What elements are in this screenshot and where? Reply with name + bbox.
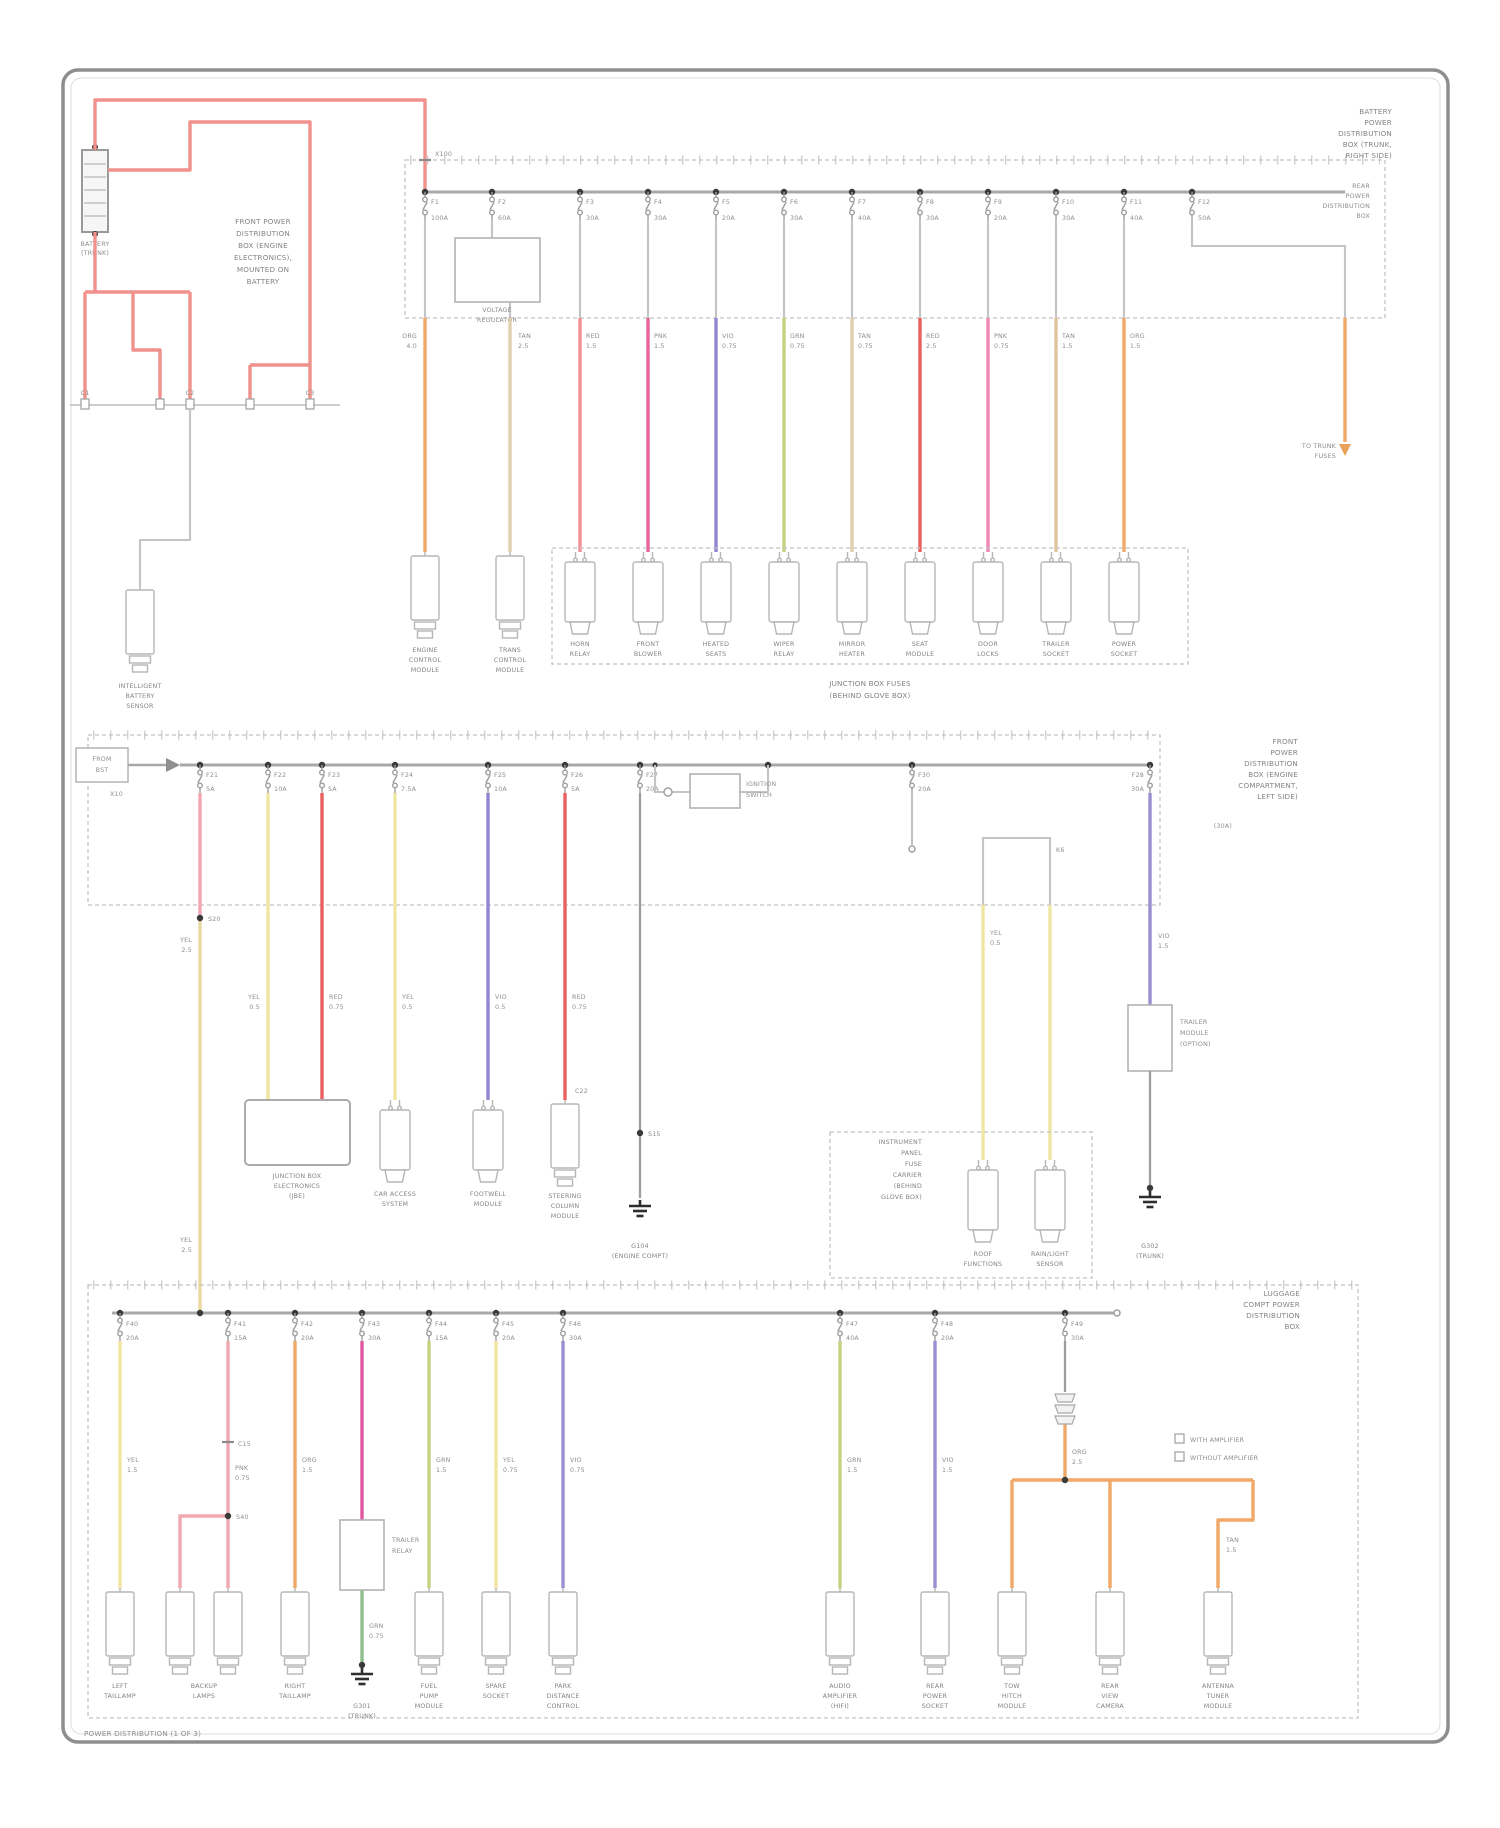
roof-functions-caption: FUNCTIONS xyxy=(964,1261,1003,1268)
to-trunk-label: TO TRUNK xyxy=(1301,443,1337,450)
svg-text:SEATS: SEATS xyxy=(706,651,727,658)
svg-text:LEFT SIDE): LEFT SIDE) xyxy=(1257,792,1298,801)
svg-text:0.75: 0.75 xyxy=(858,343,873,350)
svg-text:YEL: YEL xyxy=(179,1237,192,1244)
band2-source-label: BST xyxy=(96,767,109,774)
svg-text:STEERING: STEERING xyxy=(548,1193,581,1200)
svg-text:F26: F26 xyxy=(571,772,583,779)
svg-text:MODULE: MODULE xyxy=(496,667,525,674)
svg-text:TAN: TAN xyxy=(1061,333,1075,340)
svg-text:0.5: 0.5 xyxy=(402,1004,413,1011)
band1-load-components xyxy=(565,552,1139,634)
trailer-relay-caption: RELAY xyxy=(392,1548,413,1555)
steering-column-component xyxy=(551,1100,579,1186)
svg-text:DISTRIBUTION: DISTRIBUTION xyxy=(236,229,290,238)
svg-text:YEL: YEL xyxy=(989,930,1002,937)
footwell-caption: FOOTWELL xyxy=(470,1191,506,1198)
svg-text:VIEW: VIEW xyxy=(1101,1693,1119,1700)
svg-text:1.5: 1.5 xyxy=(942,1467,953,1474)
tcm-component xyxy=(496,552,524,638)
svg-text:RED: RED xyxy=(572,994,586,1001)
svg-text:0.75: 0.75 xyxy=(994,343,1009,350)
svg-text:20A: 20A xyxy=(126,1335,139,1342)
svg-text:2.5: 2.5 xyxy=(181,947,192,954)
svg-text:30A: 30A xyxy=(569,1335,582,1342)
band1-loads-caption: JUNCTION BOX FUSES xyxy=(828,679,911,688)
svg-text:RELAY: RELAY xyxy=(774,651,795,658)
svg-text:2.5: 2.5 xyxy=(181,1247,192,1254)
svg-text:1.5: 1.5 xyxy=(654,343,665,350)
svg-text:30A: 30A xyxy=(368,1335,381,1342)
svg-text:BACKUP: BACKUP xyxy=(191,1683,217,1690)
svg-text:2.5: 2.5 xyxy=(926,343,937,350)
rain-light-caption: RAIN/LIGHT xyxy=(1031,1251,1069,1258)
svg-text:F21: F21 xyxy=(206,772,218,779)
svg-text:YEL: YEL xyxy=(179,937,192,944)
svg-text:20A: 20A xyxy=(994,215,1007,222)
roof-functions-caption: ROOF xyxy=(974,1251,993,1258)
ground-caption: (TRUNK) xyxy=(348,1713,376,1720)
svg-text:4.0: 4.0 xyxy=(406,343,417,350)
svg-text:MOUNTED ON: MOUNTED ON xyxy=(237,265,289,274)
svg-text:0.5: 0.5 xyxy=(990,940,1001,947)
svg-text:FRONT POWER: FRONT POWER xyxy=(235,217,291,226)
svg-text:FRONT: FRONT xyxy=(1272,737,1298,746)
svg-text:VIO: VIO xyxy=(570,1457,582,1464)
svg-text:F45: F45 xyxy=(502,1321,514,1328)
svg-text:PNK: PNK xyxy=(654,333,668,340)
svg-text:30A: 30A xyxy=(1071,1335,1084,1342)
band2-amp-label: (30A) xyxy=(1214,823,1232,830)
svg-text:FUSE: FUSE xyxy=(905,1161,922,1168)
connector-label: C1 xyxy=(81,390,90,397)
svg-text:0.75: 0.75 xyxy=(790,343,805,350)
svg-text:CAMERA: CAMERA xyxy=(1096,1703,1124,1710)
footer-title: POWER DISTRIBUTION (1 OF 3) xyxy=(84,1729,201,1738)
ground-caption: (TRUNK) xyxy=(1136,1253,1164,1260)
svg-text:1.5: 1.5 xyxy=(1130,343,1141,350)
svg-text:0.5: 0.5 xyxy=(495,1004,506,1011)
svg-text:TAILLAMP: TAILLAMP xyxy=(103,1693,136,1700)
svg-text:30A: 30A xyxy=(926,215,939,222)
svg-text:JUNCTION BOX: JUNCTION BOX xyxy=(272,1173,322,1180)
svg-text:DISTRIBUTION: DISTRIBUTION xyxy=(1338,129,1392,138)
svg-text:ORG: ORG xyxy=(302,1457,317,1464)
svg-text:YEL: YEL xyxy=(247,994,260,1001)
svg-text:FUEL: FUEL xyxy=(421,1683,438,1690)
svg-text:TOW: TOW xyxy=(1003,1683,1020,1690)
svg-text:RIGHT: RIGHT xyxy=(285,1683,306,1690)
svg-text:F3: F3 xyxy=(586,199,594,206)
svg-text:F41: F41 xyxy=(234,1321,246,1328)
svg-text:SENSOR: SENSOR xyxy=(126,703,154,710)
svg-text:ELECTRONICS),: ELECTRONICS), xyxy=(234,253,292,262)
svg-text:DISTRIBUTION: DISTRIBUTION xyxy=(1323,203,1371,210)
svg-text:F23: F23 xyxy=(328,772,340,779)
svg-text:DISTRIBUTION: DISTRIBUTION xyxy=(1246,1311,1300,1320)
connector-label: C3 xyxy=(306,390,315,397)
to-trunk-label: FUSES xyxy=(1315,453,1336,460)
svg-text:VIO: VIO xyxy=(1158,933,1170,940)
svg-text:TRAILER: TRAILER xyxy=(1179,1019,1208,1026)
svg-text:F1: F1 xyxy=(431,199,439,206)
svg-text:PARK: PARK xyxy=(554,1683,572,1690)
svg-text:RED: RED xyxy=(586,333,600,340)
ground-caption: G104 xyxy=(631,1243,649,1250)
svg-text:5A: 5A xyxy=(206,786,215,793)
trailer-relay-box xyxy=(340,1520,384,1590)
splice-label: S20 xyxy=(208,916,221,923)
svg-text:0.75: 0.75 xyxy=(369,1633,384,1640)
svg-text:MIRROR: MIRROR xyxy=(839,641,866,648)
svg-text:PNK: PNK xyxy=(235,1465,249,1472)
svg-text:7.5A: 7.5A xyxy=(401,786,417,793)
svg-text:15A: 15A xyxy=(435,1335,448,1342)
svg-text:VIO: VIO xyxy=(942,1457,954,1464)
svg-text:POWER: POWER xyxy=(1346,193,1371,200)
svg-text:BOX (TRUNK,: BOX (TRUNK, xyxy=(1343,140,1392,149)
svg-text:SWITCH: SWITCH xyxy=(746,792,772,799)
svg-text:TAN: TAN xyxy=(517,333,531,340)
connector-label: C2 xyxy=(186,390,195,397)
cas-component xyxy=(380,1100,410,1182)
ground-caption: G302 xyxy=(1141,1243,1159,1250)
band2-source-box xyxy=(76,748,128,782)
svg-text:F4: F4 xyxy=(654,199,662,206)
svg-text:POWER: POWER xyxy=(923,1693,948,1700)
svg-text:WIPER: WIPER xyxy=(773,641,795,648)
svg-text:REAR: REAR xyxy=(1352,183,1370,190)
svg-text:1.5: 1.5 xyxy=(436,1467,447,1474)
band1-loads-caption: (BEHIND GLOVE BOX) xyxy=(830,691,911,700)
jbe-box xyxy=(245,1100,350,1165)
svg-text:BLOWER: BLOWER xyxy=(634,651,663,658)
svg-text:0.75: 0.75 xyxy=(570,1467,585,1474)
svg-text:F43: F43 xyxy=(368,1321,380,1328)
svg-text:AMPLIFIER: AMPLIFIER xyxy=(823,1693,858,1700)
svg-text:MODULE: MODULE xyxy=(551,1213,580,1220)
svg-text:GRN: GRN xyxy=(790,333,805,340)
svg-text:POWER: POWER xyxy=(1112,641,1137,648)
svg-text:SEAT: SEAT xyxy=(912,641,928,648)
svg-text:CONTROL: CONTROL xyxy=(547,1703,579,1710)
svg-text:5A: 5A xyxy=(571,786,580,793)
roof-functions-component xyxy=(968,1160,998,1242)
svg-text:HEATER: HEATER xyxy=(839,651,865,658)
svg-text:YEL: YEL xyxy=(401,994,414,1001)
svg-text:WITH AMPLIFIER: WITH AMPLIFIER xyxy=(1190,1437,1245,1444)
svg-text:VIO: VIO xyxy=(722,333,734,340)
svg-text:30A: 30A xyxy=(586,215,599,222)
footwell-caption: MODULE xyxy=(474,1201,503,1208)
svg-text:F48: F48 xyxy=(941,1321,953,1328)
svg-text:1.5: 1.5 xyxy=(847,1467,858,1474)
svg-text:LOCKS: LOCKS xyxy=(977,651,999,658)
svg-text:0.5: 0.5 xyxy=(249,1004,260,1011)
svg-text:RED: RED xyxy=(926,333,940,340)
svg-text:0.75: 0.75 xyxy=(722,343,737,350)
svg-text:TAILLAMP: TAILLAMP xyxy=(278,1693,311,1700)
ecm-component xyxy=(411,552,439,638)
svg-text:30A: 30A xyxy=(1062,215,1075,222)
svg-text:0.75: 0.75 xyxy=(329,1004,344,1011)
svg-text:F25: F25 xyxy=(494,772,506,779)
svg-text:POWER: POWER xyxy=(1364,118,1392,127)
trailer-relay-caption: TRAILER xyxy=(391,1537,420,1544)
svg-text:ORG: ORG xyxy=(402,333,417,340)
splice-label: S40 xyxy=(236,1514,249,1521)
voltage-regulator-caption: VOLTAGE xyxy=(482,307,512,314)
svg-text:1.5: 1.5 xyxy=(1158,943,1169,950)
wiring-diagram-page: BATTERY (TRUNK) FRONT POWER DISTRIBUTION… xyxy=(0,0,1500,1828)
svg-text:CONTROL: CONTROL xyxy=(409,657,441,664)
svg-text:30A: 30A xyxy=(1131,786,1144,793)
battery-sensor-component xyxy=(126,586,154,672)
svg-text:MODULE: MODULE xyxy=(1180,1030,1209,1037)
svg-text:MODULE: MODULE xyxy=(411,667,440,674)
inline-connector-label: C15 xyxy=(238,1441,251,1448)
svg-text:BOX: BOX xyxy=(1284,1322,1300,1331)
svg-text:F28: F28 xyxy=(1132,772,1144,779)
svg-text:INSTRUMENT: INSTRUMENT xyxy=(879,1139,922,1146)
svg-text:BOX: BOX xyxy=(1356,213,1370,220)
svg-text:COLUMN: COLUMN xyxy=(551,1203,580,1210)
svg-text:SOCKET: SOCKET xyxy=(1043,651,1070,658)
svg-text:TUNER: TUNER xyxy=(1206,1693,1230,1700)
svg-text:20A: 20A xyxy=(918,786,931,793)
svg-text:TAN: TAN xyxy=(1225,1537,1239,1544)
svg-text:0.75: 0.75 xyxy=(235,1475,250,1482)
svg-text:1.5: 1.5 xyxy=(1062,343,1073,350)
voltage-regulator-box xyxy=(455,238,540,302)
steering-column-caption: STEERING COLUMN MODULE xyxy=(548,1193,581,1220)
svg-text:ELECTRONICS: ELECTRONICS xyxy=(274,1183,320,1190)
svg-text:COMPT POWER: COMPT POWER xyxy=(1243,1300,1300,1309)
svg-text:50A: 50A xyxy=(1198,215,1211,222)
svg-text:CONTROL: CONTROL xyxy=(494,657,526,664)
svg-text:SPARE: SPARE xyxy=(485,1683,506,1690)
svg-text:MODULE: MODULE xyxy=(906,651,935,658)
svg-text:10A: 10A xyxy=(274,786,287,793)
svg-text:F11: F11 xyxy=(1130,199,1142,206)
svg-text:YEL: YEL xyxy=(126,1457,139,1464)
svg-text:PANEL: PANEL xyxy=(901,1150,922,1157)
svg-text:1.5: 1.5 xyxy=(1226,1547,1237,1554)
svg-text:CARRIER: CARRIER xyxy=(893,1172,922,1179)
svg-text:GRN: GRN xyxy=(436,1457,451,1464)
svg-text:5A: 5A xyxy=(328,786,337,793)
svg-text:DISTANCE: DISTANCE xyxy=(546,1693,579,1700)
svg-text:AUDIO: AUDIO xyxy=(829,1683,851,1690)
svg-text:RED: RED xyxy=(329,994,343,1001)
svg-text:HEATED: HEATED xyxy=(703,641,729,648)
svg-text:LUGGAGE: LUGGAGE xyxy=(1264,1289,1301,1298)
svg-text:(BEHIND: (BEHIND xyxy=(894,1183,922,1190)
rain-light-sensor-component xyxy=(1035,1160,1065,1242)
svg-text:GRN: GRN xyxy=(847,1457,862,1464)
svg-text:HORN: HORN xyxy=(570,641,590,648)
svg-text:ANTENNA: ANTENNA xyxy=(1202,1683,1234,1690)
svg-text:0.75: 0.75 xyxy=(572,1004,587,1011)
splice-label: S15 xyxy=(648,1131,661,1138)
svg-text:LAMPS: LAMPS xyxy=(193,1693,215,1700)
svg-text:ENGINE: ENGINE xyxy=(412,647,437,654)
svg-text:ORG: ORG xyxy=(1072,1449,1087,1456)
svg-text:20A: 20A xyxy=(301,1335,314,1342)
svg-text:BOX (ENGINE: BOX (ENGINE xyxy=(238,241,288,250)
svg-text:20A: 20A xyxy=(941,1335,954,1342)
svg-text:ORG: ORG xyxy=(1130,333,1145,340)
svg-text:F46: F46 xyxy=(569,1321,581,1328)
inline-connector-label: C22 xyxy=(575,1088,588,1095)
svg-text:40A: 40A xyxy=(858,215,871,222)
svg-text:30A: 30A xyxy=(654,215,667,222)
svg-text:BATTERY: BATTERY xyxy=(247,277,280,286)
svg-text:(JBE): (JBE) xyxy=(289,1193,305,1200)
svg-text:LEFT: LEFT xyxy=(112,1683,128,1690)
svg-text:F24: F24 xyxy=(401,772,413,779)
svg-text:20A: 20A xyxy=(722,215,735,222)
svg-text:COMPARTMENT,: COMPARTMENT, xyxy=(1238,781,1298,790)
svg-text:HITCH: HITCH xyxy=(1002,1693,1022,1700)
svg-text:F22: F22 xyxy=(274,772,286,779)
svg-text:1.5: 1.5 xyxy=(586,343,597,350)
svg-text:SOCKET: SOCKET xyxy=(483,1693,510,1700)
svg-text:RIGHT SIDE): RIGHT SIDE) xyxy=(1345,151,1392,160)
ecm-caption: ENGINE CONTROL MODULE xyxy=(409,647,441,674)
svg-text:100A: 100A xyxy=(431,215,449,222)
svg-text:GLOVE BOX): GLOVE BOX) xyxy=(881,1194,922,1201)
svg-text:0.75: 0.75 xyxy=(503,1467,518,1474)
ground-caption: G301 xyxy=(353,1703,371,1710)
svg-text:YEL: YEL xyxy=(502,1457,515,1464)
svg-text:F42: F42 xyxy=(301,1321,313,1328)
svg-text:F12: F12 xyxy=(1198,199,1210,206)
svg-text:F27: F27 xyxy=(646,772,658,779)
relay-label: K6 xyxy=(1056,847,1065,854)
svg-text:REAR: REAR xyxy=(1101,1683,1119,1690)
svg-text:BATTERY: BATTERY xyxy=(1359,107,1392,116)
svg-text:F8: F8 xyxy=(926,199,934,206)
svg-text:F6: F6 xyxy=(790,199,798,206)
svg-text:GRN: GRN xyxy=(369,1623,384,1630)
svg-text:BATTERY: BATTERY xyxy=(126,693,155,700)
rain-light-caption: SENSOR xyxy=(1036,1261,1064,1268)
svg-text:F49: F49 xyxy=(1071,1321,1083,1328)
battery xyxy=(82,144,108,237)
svg-text:F40: F40 xyxy=(126,1321,138,1328)
svg-text:REAR: REAR xyxy=(926,1683,944,1690)
svg-text:40A: 40A xyxy=(846,1335,859,1342)
svg-text:RELAY: RELAY xyxy=(570,651,591,658)
svg-text:30A: 30A xyxy=(790,215,803,222)
footwell-module-component xyxy=(473,1100,503,1182)
svg-text:1.5: 1.5 xyxy=(302,1467,313,1474)
svg-text:F30: F30 xyxy=(918,772,930,779)
svg-text:DISTRIBUTION: DISTRIBUTION xyxy=(1244,759,1298,768)
svg-text:MODULE: MODULE xyxy=(1204,1703,1233,1710)
svg-text:MODULE: MODULE xyxy=(415,1703,444,1710)
svg-text:(OPTION): (OPTION) xyxy=(1180,1041,1211,1048)
power-distribution-diagram: BATTERY (TRUNK) FRONT POWER DISTRIBUTION… xyxy=(0,0,1500,1828)
page-border xyxy=(63,70,1448,1742)
svg-text:TRAILER: TRAILER xyxy=(1041,641,1070,648)
svg-text:F2: F2 xyxy=(498,199,506,206)
svg-text:MODULE: MODULE xyxy=(998,1703,1027,1710)
ground-caption: (ENGINE COMPT) xyxy=(612,1253,668,1260)
svg-text:WITHOUT AMPLIFIER: WITHOUT AMPLIFIER xyxy=(1190,1455,1259,1462)
svg-text:1.5: 1.5 xyxy=(127,1467,138,1474)
svg-text:F5: F5 xyxy=(722,199,730,206)
band2-source-label: FROM xyxy=(92,756,111,763)
connector-stack xyxy=(1055,1394,1075,1424)
svg-text:SOCKET: SOCKET xyxy=(1111,651,1138,658)
svg-text:FRONT: FRONT xyxy=(637,641,660,648)
svg-text:15A: 15A xyxy=(234,1335,247,1342)
svg-text:PUMP: PUMP xyxy=(420,1693,438,1700)
svg-text:SOCKET: SOCKET xyxy=(922,1703,949,1710)
band1-connector-label: X100 xyxy=(435,151,452,158)
svg-text:F47: F47 xyxy=(846,1321,858,1328)
svg-text:10A: 10A xyxy=(494,786,507,793)
svg-text:(HIFI): (HIFI) xyxy=(831,1703,849,1710)
svg-text:VIO: VIO xyxy=(495,994,507,1001)
svg-text:40A: 40A xyxy=(1130,215,1143,222)
svg-text:TRANS: TRANS xyxy=(498,647,521,654)
svg-text:F10: F10 xyxy=(1062,199,1074,206)
svg-text:TAN: TAN xyxy=(857,333,871,340)
svg-text:POWER: POWER xyxy=(1270,748,1298,757)
cas-caption: SYSTEM xyxy=(382,1201,408,1208)
cas-caption: CAR ACCESS xyxy=(374,1191,416,1198)
svg-text:2.5: 2.5 xyxy=(518,343,529,350)
svg-text:F9: F9 xyxy=(994,199,1002,206)
svg-text:INTELLIGENT: INTELLIGENT xyxy=(119,683,162,690)
trailer-module-caption: TRAILER MODULE (OPTION) xyxy=(1179,1019,1211,1048)
svg-text:60A: 60A xyxy=(498,215,511,222)
svg-text:IGNITION: IGNITION xyxy=(746,781,776,788)
trailer-module-box xyxy=(1128,1005,1172,1071)
svg-text:2.5: 2.5 xyxy=(1072,1459,1083,1466)
svg-text:F44: F44 xyxy=(435,1321,447,1328)
svg-text:20A: 20A xyxy=(502,1335,515,1342)
svg-text:DOOR: DOOR xyxy=(978,641,998,648)
band2-connector-tag: X10 xyxy=(110,791,123,798)
svg-text:F7: F7 xyxy=(858,199,866,206)
svg-text:BOX (ENGINE: BOX (ENGINE xyxy=(1248,770,1298,779)
svg-text:PNK: PNK xyxy=(994,333,1008,340)
